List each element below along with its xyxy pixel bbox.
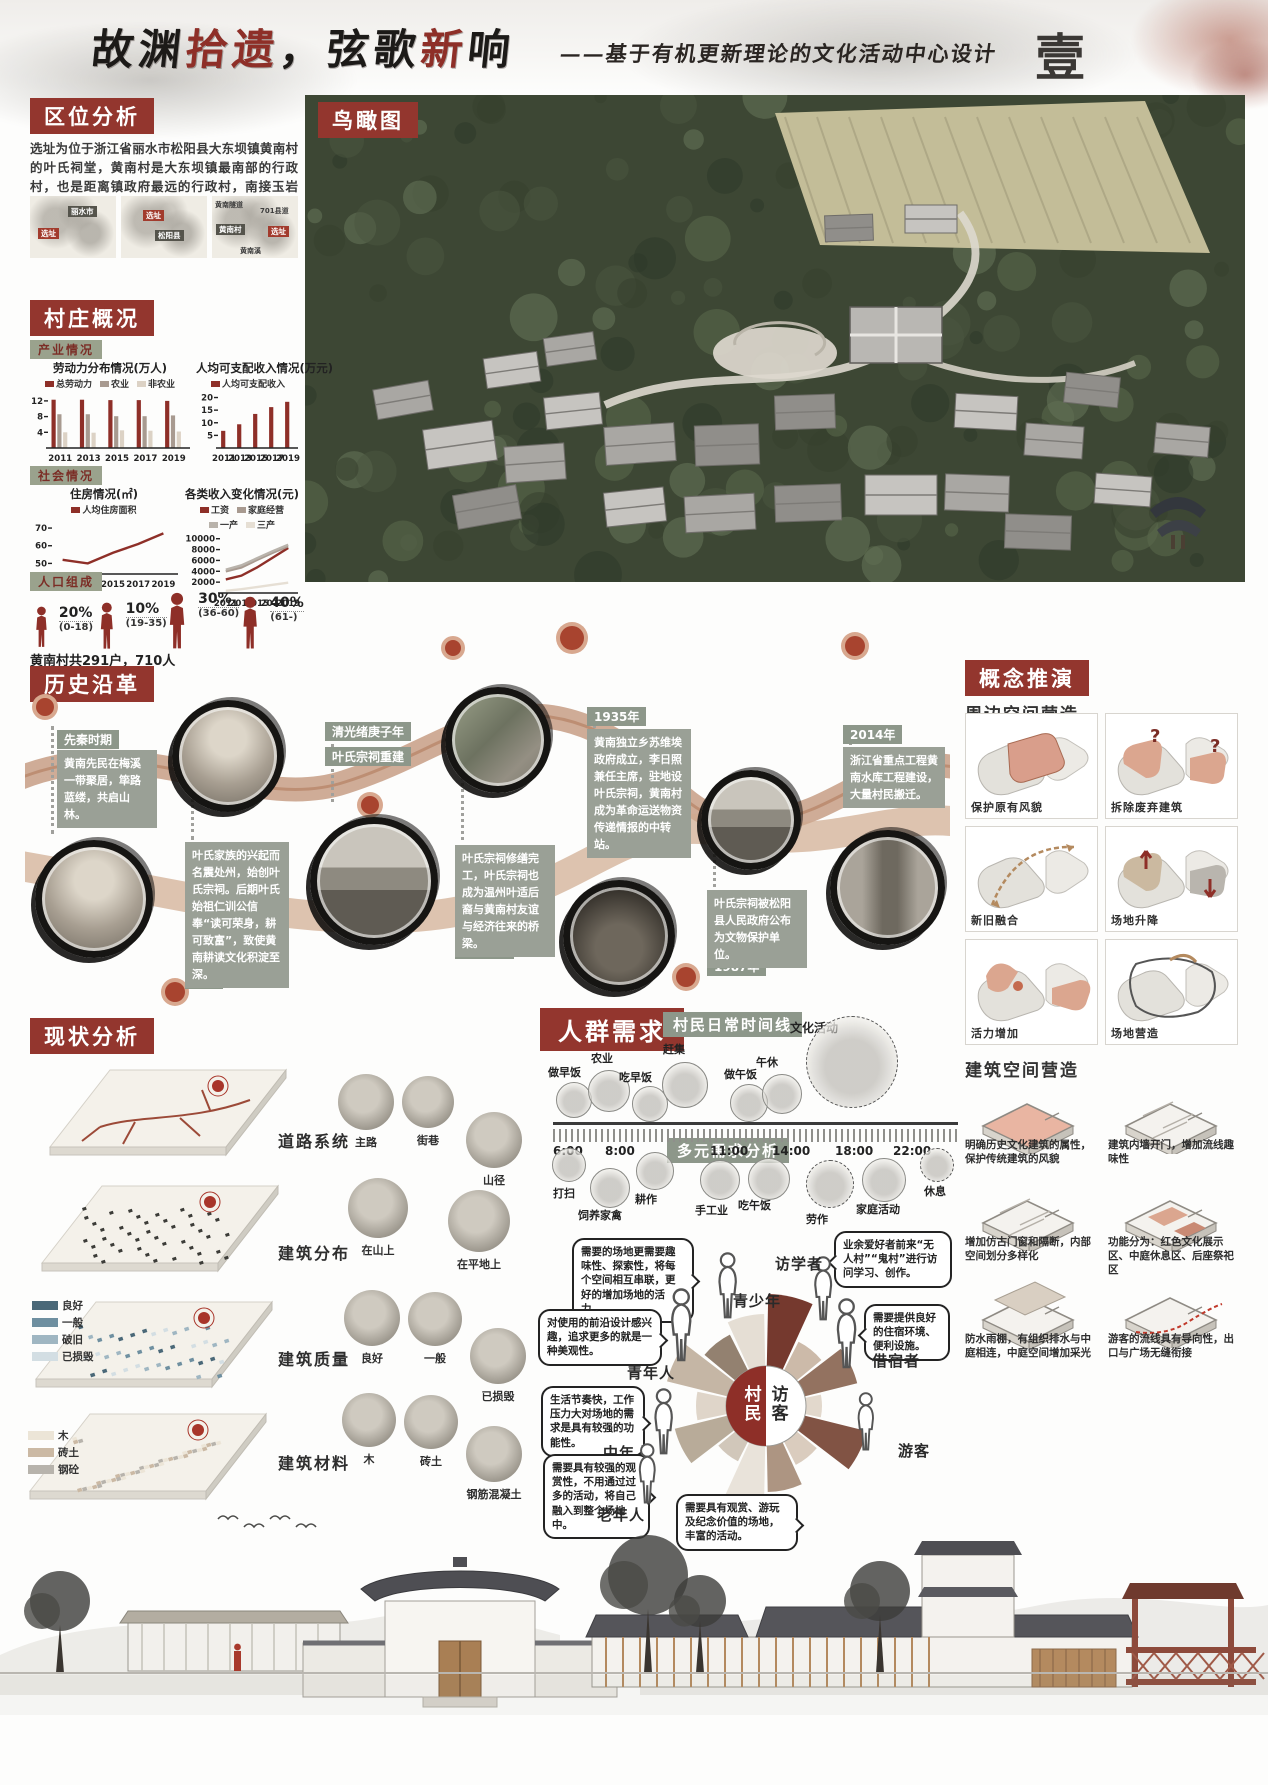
person-figure: [852, 1392, 880, 1452]
population-percent: 40%: [270, 596, 304, 612]
chart-legend: 工资家庭经营一产三产: [184, 503, 300, 531]
needs-activity-label: 打扫: [553, 1185, 575, 1201]
concept-surround-card: ??拆除废弃建筑: [1105, 713, 1238, 819]
status-thumb-photo: [402, 1076, 454, 1128]
legend-item: 人均住房面积: [71, 503, 136, 516]
timeline-photo-portrait: [35, 840, 153, 958]
chart-labor: 劳动力分布情况(万人)总劳动力农业非农业12842011201320152017…: [28, 360, 192, 467]
title-part: ，: [277, 25, 329, 74]
chart-legend: 人均住房面积: [28, 503, 180, 516]
needs-time-label: 14:00: [772, 1144, 810, 1158]
needs-activity-label: 劳作: [806, 1211, 828, 1227]
concept-surround-caption: 活力增加: [971, 1025, 1019, 1041]
svg-text:15: 15: [201, 406, 213, 416]
title-part: 拾遗: [183, 25, 282, 74]
needs-group-label: 游客: [898, 1440, 930, 1461]
location-map: 松阳县选址: [121, 196, 207, 258]
map-label: 选址: [143, 210, 164, 221]
concept-surround-card: 场地营造: [1105, 939, 1238, 1045]
chart-plot: 201510520112013201520172019: [196, 391, 300, 463]
timeline-node: [361, 796, 379, 814]
timeline-event-label: 1935年: [587, 707, 646, 726]
legend-item: 人均可支配收入: [211, 377, 285, 390]
legend-swatch: [32, 1335, 58, 1344]
population-text: 40%(61-): [270, 596, 304, 623]
section-tag-location: 区位分析: [30, 98, 154, 134]
concept-surround-card: 场地升降: [1105, 826, 1238, 932]
status-thumb-photo: [448, 1190, 510, 1252]
legend-swatch: [28, 1448, 54, 1457]
population-percent: 30%: [198, 592, 239, 608]
population-group: 20%(0-18): [32, 606, 93, 633]
map-label: 选址: [268, 226, 289, 237]
needs-activity-label: 做早饭: [548, 1064, 581, 1080]
needs-activity-photo: [748, 1158, 790, 1200]
legend-item: 农业: [100, 377, 129, 390]
map-label: 黄南隧道: [215, 200, 243, 210]
status-legend-item: 木: [28, 1428, 69, 1443]
chart-title: 劳动力分布情况(万人): [28, 360, 192, 376]
concept-surround-caption: 场地升降: [1111, 912, 1159, 928]
needs-activity-photo: [662, 1062, 708, 1108]
needs-activity-label: 午休: [756, 1054, 778, 1070]
concept-building-thumb: [965, 1076, 1093, 1138]
map-label: 黄南村: [216, 224, 245, 235]
status-legend-item: 良好: [32, 1298, 83, 1313]
timeline-event-label: 先秦时期: [57, 730, 119, 749]
legend-swatch: [246, 522, 255, 528]
status-thumb-label: 砖土: [390, 1453, 472, 1469]
chart-title: 各类收入变化情况(元): [184, 486, 300, 502]
history-timeline: 先秦时期黄南先民在梅溪一带聚居，筚路蓝缕，共启山林。宋代叶氏家族的兴起而名震处州…: [25, 630, 950, 1020]
svg-text:4: 4: [37, 428, 43, 438]
timeline-photo-temple: [701, 770, 801, 870]
person-silhouette-icon: [32, 606, 51, 648]
timeline-event-text: 黄南先民在梅溪一带聚居，筚路蓝缕，共启山林。: [57, 750, 157, 828]
section-tag-status: 现状分析: [30, 1018, 154, 1054]
svg-text:10: 10: [201, 419, 213, 429]
map-label: 黄南溪: [240, 246, 261, 256]
status-plate: [40, 1052, 290, 1176]
status-thumb-photo: [466, 1426, 522, 1482]
concept-building-thumb: [965, 1173, 1093, 1235]
timeline-node: [676, 967, 696, 987]
svg-text:5: 5: [207, 431, 213, 441]
status-thumb-photo: [344, 1290, 400, 1346]
concept-building-thumb: [1108, 1270, 1236, 1332]
status-thumb-photo: [348, 1178, 408, 1238]
legend-swatch: [32, 1352, 58, 1361]
location-map: 丽水市选址: [30, 196, 116, 258]
location-map: 黄南隧道701县道黄南村选址黄南溪: [212, 196, 298, 258]
aerial-tag: 鸟瞰图: [318, 102, 418, 138]
svg-text:2019: 2019: [276, 454, 300, 463]
map-label: 701县道: [260, 206, 289, 216]
needs-activity-label: 赶集: [663, 1041, 685, 1057]
title-part: 故渊: [89, 25, 188, 74]
population-group: 10%(19-35): [96, 602, 167, 629]
needs-activity-label: 耕作: [635, 1191, 657, 1207]
legend-swatch: [137, 381, 146, 387]
person-silhouette-icon: [96, 602, 118, 650]
needs-activity-label: 做午饭: [724, 1066, 757, 1082]
fan-center-left-label: 村民: [745, 1384, 762, 1424]
timeline-node: [165, 982, 185, 1002]
title-part: 响: [465, 25, 517, 74]
aerial-render-image: [305, 95, 1245, 582]
svg-text:2019: 2019: [162, 454, 186, 463]
status-thumb-photo: [342, 1393, 396, 1447]
map-label: 丽水市: [68, 206, 97, 217]
status-thumb-photo: [466, 1112, 522, 1168]
status-thumb-label: 在平地上: [434, 1256, 524, 1272]
needs-time-label: 18:00: [835, 1144, 873, 1158]
timeline-photo-portrait: [172, 700, 284, 812]
legend-swatch: [209, 522, 218, 528]
subtag-industry: 产业情况: [30, 340, 102, 359]
svg-text:70: 70: [35, 524, 47, 534]
person-outline-icon: [664, 1288, 699, 1363]
chart-title: 人均可支配收入情况(万元): [196, 360, 300, 376]
needs-activity-photo: [920, 1148, 954, 1182]
person-silhouette-icon: [164, 592, 190, 650]
needs-activity-label: 吃早饭: [619, 1069, 652, 1085]
concept-building-caption: 游客的流线具有导向性，出口与广场无缝衔接: [1108, 1332, 1240, 1360]
needs-activity-label: 休息: [924, 1183, 946, 1199]
concept-building-caption: 明确历史文化建筑的属性，保护传统建筑的风貌: [965, 1138, 1097, 1166]
legend-swatch: [71, 507, 80, 513]
poster: 故渊拾遗，弦歌新响 ——基于有机更新理论的文化活动中心设计 壹 鸟瞰图 区位分析…: [0, 0, 1268, 1785]
status-plate: [32, 1168, 282, 1292]
legend-swatch: [32, 1318, 58, 1327]
fan-center-right-label: 访客: [771, 1384, 790, 1424]
status-thumb-label: 在山上: [334, 1242, 422, 1258]
svg-text:50: 50: [35, 559, 47, 569]
status-legend-item: 破旧: [32, 1332, 83, 1347]
timeline-photo-interior: [563, 880, 675, 992]
legend-item: 家庭经营: [237, 503, 284, 516]
timeline-event-text: 浙江省重点工程黄南水库工程建设，大量村民搬迁。: [843, 747, 945, 808]
status-thumb-photo: [404, 1395, 458, 1449]
title-part: 弦歌: [324, 25, 423, 74]
concept-surround-caption: 场地营造: [1111, 1025, 1159, 1041]
title-part: 新: [418, 25, 470, 74]
timeline-leader: [51, 726, 54, 834]
timeline-photo-aerial: [445, 687, 551, 793]
chart-plot: 128420112013201520172019: [28, 391, 192, 463]
timeline-node: [845, 636, 865, 656]
legend-swatch: [211, 381, 220, 387]
concept-building-caption: 增加仿古门窗和隔断，内部空间划分多样化: [965, 1235, 1097, 1263]
poster-title: 故渊拾遗，弦歌新响: [89, 16, 519, 77]
person-figure: [830, 1298, 863, 1370]
timeline-node: [445, 640, 461, 656]
needs-activity-label: 饲养家禽: [578, 1207, 622, 1223]
section-tag-village: 村庄概况: [30, 300, 154, 336]
needs-activity-label: 农业: [591, 1050, 613, 1066]
concept-surround-caption: 拆除废弃建筑: [1111, 799, 1183, 815]
concept-surround-caption: 新旧融合: [971, 912, 1019, 928]
svg-text:?: ?: [1210, 736, 1220, 757]
population-percent: 10%: [126, 602, 167, 618]
needs-time-label: 8:00: [605, 1144, 635, 1158]
svg-text:20: 20: [201, 394, 213, 404]
section-tag-concept: 概念推演: [965, 660, 1089, 696]
needs-bubble: 对使用的前沿设计感兴趣，追求更多的就是一种美观性。: [538, 1309, 662, 1366]
subtag-population: 人口组成: [30, 572, 102, 591]
legend-swatch: [28, 1431, 54, 1440]
needs-activity-photo: [700, 1160, 740, 1200]
header: 故渊拾遗，弦歌新响 ——基于有机更新理论的文化活动中心设计 壹: [0, 0, 1268, 92]
needs-group-label: 青年人: [627, 1362, 675, 1383]
needs-group-label: 借宿者: [872, 1350, 920, 1371]
needs-activity-photo: [552, 1148, 586, 1182]
population-range: (61-): [270, 612, 304, 623]
concept-surround-card: 保护原有风貌: [965, 713, 1098, 819]
legend-item: 三产: [246, 518, 275, 531]
elevation-band: [0, 1505, 1268, 1785]
timeline-photo-corridor: [830, 830, 945, 945]
timeline-node: [560, 626, 584, 650]
legend-swatch: [28, 1465, 54, 1474]
legend-swatch: [32, 1301, 58, 1310]
chart-legend: 总劳动力农业非农业: [28, 377, 192, 390]
population-group: 30%(36-60): [164, 592, 239, 619]
svg-text:?: ?: [1150, 726, 1160, 747]
concept-building-thumb: [1108, 1076, 1236, 1138]
svg-text:2011: 2011: [48, 454, 72, 463]
status-thumb-photo: [408, 1292, 462, 1346]
subtag-social: 社会情况: [30, 466, 102, 485]
population-range: (19-35): [126, 618, 167, 629]
map-label: 选址: [38, 228, 59, 239]
needs-time-label: 11:00: [710, 1144, 748, 1158]
status-legend-item: 一般: [32, 1315, 83, 1330]
legend-item: 工资: [200, 503, 229, 516]
concept-building-caption: 建筑内墙开门，增加流线趣味性: [1108, 1138, 1240, 1166]
needs-activity-label: 手工业: [695, 1202, 728, 1218]
status-thumb-label: 一般: [394, 1350, 476, 1366]
status-thumb-label: 已损毁: [456, 1388, 540, 1404]
status-legend-item: 砖土: [28, 1445, 79, 1460]
svg-text:12: 12: [31, 397, 43, 407]
svg-text:4000: 4000: [191, 567, 215, 577]
svg-text:6000: 6000: [191, 556, 215, 566]
needs-activity-photo: [762, 1074, 802, 1114]
status-thumb-label: 街巷: [388, 1132, 468, 1148]
needs-group-label: 青少年: [733, 1290, 781, 1311]
needs-activity-photo: [556, 1082, 592, 1118]
concept-surround-caption: 保护原有风貌: [971, 799, 1043, 815]
legend-swatch: [237, 507, 246, 513]
svg-text:60: 60: [35, 542, 47, 552]
timeline-photo-temple: [310, 817, 438, 945]
chart-income: 人均可支配收入情况(万元)人均可支配收入20151052011201320152…: [196, 360, 300, 467]
chart-legend: 人均可支配收入: [196, 377, 300, 390]
timeline-event-label: 清光绪庚子年: [325, 722, 411, 741]
needs-culture-circle: [806, 1016, 898, 1108]
svg-text:2017: 2017: [126, 580, 150, 589]
concept-building-thumb: [1108, 1173, 1236, 1235]
needs-activity-photo: [636, 1152, 674, 1190]
status-legend-item: 钢砼: [28, 1462, 79, 1477]
legend-item: 一产: [209, 518, 238, 531]
svg-text:10000: 10000: [185, 535, 215, 545]
svg-text:2000: 2000: [191, 578, 215, 588]
concept-surround-card: 活力增加: [965, 939, 1098, 1045]
status-thumb-label: 钢筋混凝土: [452, 1486, 536, 1502]
svg-text:2019: 2019: [151, 580, 175, 589]
population-range: (0-18): [59, 622, 93, 633]
population-text: 10%(19-35): [126, 602, 167, 629]
legend-item: 总劳动力: [45, 377, 92, 390]
needs-timeline-tag: 村民日常时间线: [663, 1012, 802, 1037]
population-text: 30%(36-60): [198, 592, 239, 619]
legend-swatch: [45, 381, 54, 387]
svg-text:2017: 2017: [133, 454, 157, 463]
chart-title: 住房情况(㎡): [28, 486, 180, 502]
needs-activity-label: 家庭活动: [856, 1201, 900, 1217]
svg-text:2013: 2013: [77, 454, 101, 463]
status-thumb-photo: [338, 1074, 394, 1130]
person-outline-icon: [852, 1392, 880, 1452]
concept-building-caption: 防水雨棚，有组织排水与中庭相连，中庭空间增加采光: [965, 1332, 1097, 1360]
person-figure: [664, 1288, 699, 1363]
status-thumb-label: 山径: [452, 1172, 536, 1188]
population-group: 40%(61-): [238, 596, 304, 623]
needs-axis: [553, 1122, 958, 1125]
seal-icon: 壹: [1035, 18, 1085, 90]
legend-swatch: [200, 507, 209, 513]
timeline-event-text: 叶氏宗祠重建: [325, 747, 411, 766]
timeline-node: [36, 698, 54, 716]
needs-activity-photo: [806, 1160, 854, 1208]
needs-axis-ticks: [553, 1129, 958, 1142]
needs-bubble: 业余爱好者前来“无人村”“鬼村”进行访问学习、创作。: [834, 1231, 952, 1288]
timeline-event-label: 2014年: [843, 725, 902, 744]
population-range: (36-60): [198, 608, 239, 619]
person-outline-icon: [830, 1298, 863, 1370]
svg-text:2015: 2015: [105, 454, 129, 463]
needs-activity-photo: [590, 1168, 630, 1208]
legend-swatch: [100, 381, 109, 387]
timeline-event-text: 叶氏宗祠被松阳县人民政府公布为文物保护单位。: [707, 890, 807, 968]
person-outline-icon: [633, 1443, 662, 1505]
elevation-drawing: [0, 1505, 1268, 1785]
concept-building-thumb: [965, 1270, 1093, 1332]
aerial-render: [305, 95, 1245, 582]
svg-text:8000: 8000: [191, 546, 215, 556]
poster-subtitle: ——基于有机更新理论的文化活动中心设计: [558, 38, 999, 68]
legend-item: 非农业: [137, 377, 175, 390]
map-label: 松阳县: [155, 230, 184, 241]
status-thumb-photo: [470, 1328, 526, 1384]
concept-surround-card: 新旧融合: [965, 826, 1098, 932]
population-text: 20%(0-18): [59, 606, 93, 633]
timeline-event-text: 黄南独立乡苏维埃政府成立，李日照兼任主席，驻地设叶氏宗祠，黄南村成为革命运送物资…: [587, 729, 691, 858]
person-silhouette-icon: [238, 596, 262, 650]
svg-text:8: 8: [37, 413, 43, 423]
needs-activity-photo: [862, 1158, 906, 1202]
population-percent: 20%: [59, 606, 93, 622]
person-figure: [633, 1443, 662, 1505]
svg-text:2015: 2015: [101, 580, 125, 589]
timeline-event-text: 叶氏宗祠修缮完工，叶氏宗祠也成为温州叶适后裔与黄南村友谊与经济往来的桥梁。: [455, 845, 555, 957]
timeline-event-text: 叶氏家族的兴起而名震处州，始创叶氏宗祠。后期叶氏始祖仁训公信奉“读可荣身，耕可致…: [185, 842, 289, 988]
needs-group-label: 访学者: [775, 1253, 823, 1274]
status-legend-item: 已损毁: [32, 1349, 94, 1364]
